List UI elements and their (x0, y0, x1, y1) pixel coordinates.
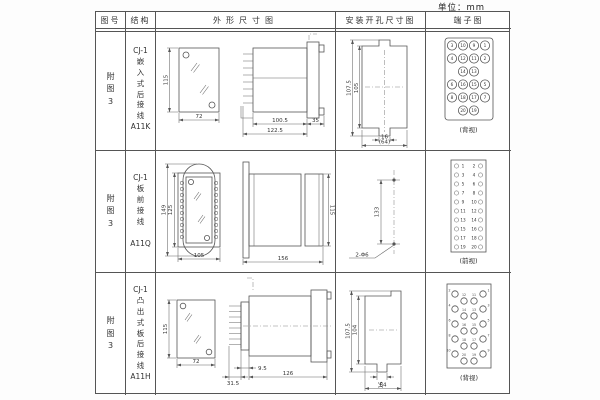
front-view: 115 72 (163, 300, 215, 368)
row2-outline-cell: 149 125 105 156 (156, 151, 336, 273)
hole-callout: 2-Φ6 (355, 252, 369, 258)
svg-text:14: 14 (460, 69, 466, 74)
svg-text:2: 2 (473, 163, 476, 168)
svg-text:4: 4 (473, 172, 476, 177)
svg-text:18: 18 (471, 235, 477, 240)
svg-text:15: 15 (471, 82, 477, 87)
svg-text:7: 7 (484, 95, 487, 100)
svg-text:5: 5 (462, 181, 465, 186)
outline-drawing-a11k: 115 72 100.5 (157, 30, 335, 150)
svg-text:8: 8 (473, 190, 476, 195)
svg-text:11: 11 (471, 56, 477, 61)
svg-text:16: 16 (462, 323, 466, 327)
row1-mounting-cell: 107.5 105 16 (64) (336, 29, 426, 151)
svg-text:13: 13 (460, 217, 466, 222)
terminal-circles: 3 10 9 1 4 12 11 2 14 13 6 16 15 5 8 18 (447, 40, 489, 114)
terminal-diagram-a11k: 3 10 9 1 4 12 11 2 14 13 6 16 15 5 8 18 (427, 30, 510, 150)
side-view: 9.5 31.5 126 (222, 278, 333, 387)
row2-mounting-cell: 133 2-Φ6 (336, 151, 426, 273)
terminal-caption: (背视) (459, 125, 477, 134)
header-double-rule (95, 31, 510, 32)
front-view: 149 125 105 (161, 164, 220, 262)
header-terminal: 端子图 (426, 12, 511, 29)
dim-label: 105 (193, 253, 204, 259)
svg-text:5: 5 (488, 319, 490, 323)
svg-text:11: 11 (460, 208, 466, 213)
svg-text:19: 19 (460, 244, 466, 249)
terminal-circles: 1 3 5 7 9 11 13 15 17 19 2 4 6 8 10 12 1 (454, 163, 482, 249)
svg-text:17: 17 (472, 338, 476, 342)
dim-label: 104 (352, 324, 358, 335)
svg-text:10: 10 (460, 43, 466, 48)
cutout-view: 107.5 105 16 (64) (346, 40, 407, 148)
row2-terminal-cell: 1 3 5 7 9 11 13 15 17 19 2 4 6 8 10 12 1 (426, 151, 511, 273)
outline-drawing-a11q: 149 125 105 156 (157, 152, 335, 272)
page: 单位：mm 图号 结构 外形尺寸图 安装开孔尺寸图 端子图 附 图 3 CJ-1… (0, 0, 600, 400)
dim-label: 107.5 (345, 323, 351, 339)
terminal-diagram-a11q: 1 3 5 7 9 11 13 15 17 19 2 4 6 8 10 12 1 (427, 152, 510, 272)
header-structure: 结构 (126, 12, 156, 29)
dim-label: 72 (195, 114, 202, 120)
dim-label: 64 (379, 383, 386, 389)
svg-text:9: 9 (462, 199, 465, 204)
terminal-diagram-a11h: 2 4 6 8 10 12 14 16 18 20 11 13 15 17 19… (427, 274, 510, 394)
svg-text:10: 10 (471, 199, 477, 204)
svg-text:8: 8 (451, 95, 454, 100)
dim-label: 100.5 (272, 118, 288, 124)
dim-label: 115 (163, 323, 169, 334)
dim-label: (64) (378, 139, 389, 145)
row1-fig-no: 附 图 3 (96, 29, 126, 151)
row3-outline-cell: 115 72 (156, 273, 336, 395)
svg-text:15: 15 (460, 226, 466, 231)
svg-text:3: 3 (462, 172, 465, 177)
header-fig-no: 图号 (96, 12, 126, 29)
cutout-view: 107.5 104 16 64 (345, 291, 401, 391)
dim-label: 133 (374, 206, 380, 217)
spec-table: 图号 结构 外形尺寸图 安装开孔尺寸图 端子图 附 图 3 CJ-1 嵌 入 式… (95, 11, 510, 394)
dim-label: 122.5 (267, 128, 283, 134)
header-outline: 外形尺寸图 (156, 12, 336, 29)
dim-label: 31.5 (226, 381, 239, 387)
svg-text:7: 7 (462, 190, 465, 195)
svg-text:7: 7 (488, 334, 490, 338)
row1-outline-cell: 115 72 100.5 (156, 29, 336, 151)
dim-label: 156 (277, 256, 288, 262)
svg-text:13: 13 (472, 308, 476, 312)
svg-text:6: 6 (473, 181, 476, 186)
svg-text:4: 4 (451, 56, 454, 61)
svg-text:4: 4 (448, 304, 450, 308)
dim-label: 35 (312, 118, 319, 124)
row3-structure: CJ-1 凸 出 式 板 后 接 线 A11H (126, 273, 156, 395)
dim-label: 115 (163, 74, 169, 85)
mounting-drawing-a11q: 133 2-Φ6 (337, 152, 425, 272)
svg-text:13: 13 (471, 69, 477, 74)
svg-text:1: 1 (488, 289, 490, 293)
terminal-caption: (前视) (459, 256, 477, 265)
svg-text:18: 18 (462, 338, 466, 342)
svg-text:6: 6 (451, 82, 454, 87)
svg-text:11: 11 (472, 293, 476, 297)
terminal-caption: (背视) (460, 373, 478, 382)
svg-text:3: 3 (451, 43, 454, 48)
svg-text:12: 12 (462, 293, 466, 297)
dim-label: 105 (354, 82, 360, 93)
svg-text:9: 9 (473, 43, 476, 48)
svg-text:6: 6 (448, 319, 450, 323)
svg-text:16: 16 (471, 226, 477, 231)
svg-text:19: 19 (471, 108, 477, 113)
svg-text:8: 8 (448, 334, 450, 338)
dim-label: 107.5 (346, 79, 352, 95)
hole-spacing-view: 133 2-Φ6 (349, 170, 400, 259)
svg-text:9: 9 (488, 349, 490, 353)
row2-fig-no: 附 图 3 (96, 151, 126, 273)
svg-text:12: 12 (460, 56, 466, 61)
row3-mounting-cell: 107.5 104 16 64 (336, 273, 426, 395)
row1-terminal-cell: 3 10 9 1 4 12 11 2 14 13 6 16 15 5 8 18 (426, 29, 511, 151)
terminal-circles: 2 4 6 8 10 12 14 16 18 20 11 13 15 17 19… (446, 289, 489, 365)
svg-text:1: 1 (462, 163, 465, 168)
svg-text:17: 17 (460, 235, 466, 240)
svg-text:19: 19 (472, 353, 476, 357)
svg-text:15: 15 (472, 323, 476, 327)
svg-text:20: 20 (471, 244, 477, 249)
svg-text:10: 10 (446, 349, 450, 353)
dim-label: 149 (161, 204, 167, 215)
svg-text:2: 2 (484, 56, 487, 61)
row1-structure: CJ-1 嵌 入 式 后 接 线 A11K (126, 29, 156, 151)
mounting-drawing-a11k: 107.5 105 16 (64) (337, 30, 425, 150)
svg-text:14: 14 (462, 308, 466, 312)
mounting-drawing-a11h: 107.5 104 16 64 (337, 274, 425, 394)
side-view: 156 115 (243, 162, 335, 265)
svg-text:1: 1 (484, 43, 487, 48)
svg-text:20: 20 (462, 353, 466, 357)
svg-text:18: 18 (460, 95, 466, 100)
dim-label: 72 (192, 359, 199, 365)
side-view: 100.5 35 122.5 (241, 34, 324, 137)
svg-text:2: 2 (448, 289, 450, 293)
svg-text:20: 20 (460, 108, 466, 113)
svg-text:14: 14 (471, 217, 477, 222)
front-view: 115 72 (163, 48, 219, 123)
dim-label: 9.5 (258, 366, 267, 372)
dim-label: 125 (168, 204, 174, 215)
svg-text:17: 17 (471, 95, 477, 100)
outline-drawing-a11h: 115 72 (157, 274, 335, 394)
dim-label: 126 (282, 371, 293, 377)
dim-label: 115 (328, 204, 334, 215)
row3-terminal-cell: 2 4 6 8 10 12 14 16 18 20 11 13 15 17 19… (426, 273, 511, 395)
row2-structure: CJ-1 板 前 接 线 A11Q (126, 151, 156, 273)
svg-text:16: 16 (460, 82, 466, 87)
svg-text:5: 5 (484, 82, 487, 87)
header-mounting: 安装开孔尺寸图 (336, 12, 426, 29)
svg-text:3: 3 (488, 304, 490, 308)
row3-fig-no: 附 图 3 (96, 273, 126, 395)
svg-text:12: 12 (471, 208, 477, 213)
